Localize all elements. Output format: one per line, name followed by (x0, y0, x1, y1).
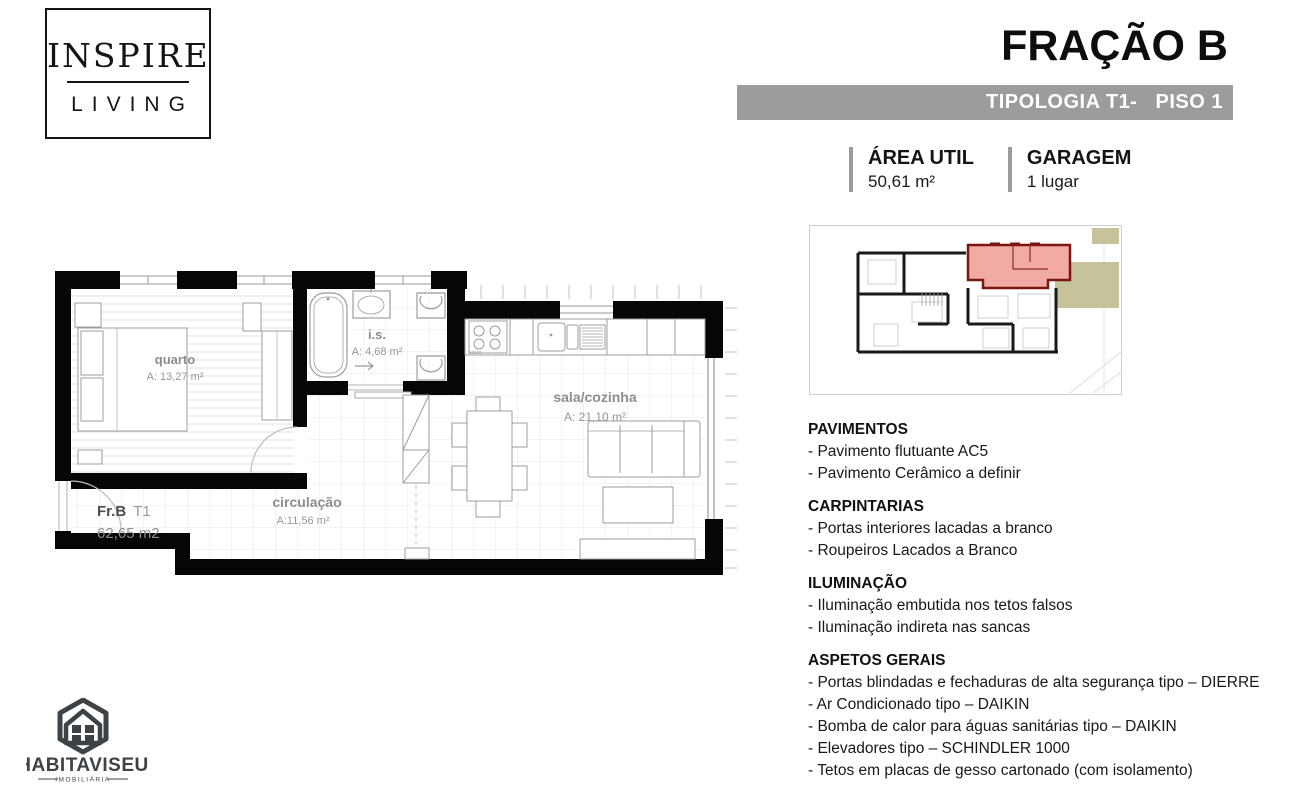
room-area-is: A: 4,68 m² (352, 346, 403, 358)
spec-list: PAVIMENTOS - Pavimento flutuante AC5 - P… (808, 419, 1282, 782)
spec-item: - Roupeiros Lacados a Branco (808, 540, 1282, 562)
kitchen-sink (538, 323, 565, 351)
balcony-glass-door (708, 358, 714, 519)
room-label-circulacao: circulação (272, 494, 341, 510)
brand-divider (67, 81, 189, 83)
nightstand (75, 303, 101, 327)
chair (452, 423, 467, 447)
spec-section-iluminacao: ILUMINAÇÃO - Iluminação embutida nos tet… (808, 573, 1282, 639)
room-area-circulacao: A:11,56 m² (277, 515, 330, 527)
bedroom-stool (78, 450, 102, 464)
spec-item: - Elevadores tipo – SCHINDLER 1000 (808, 738, 1282, 760)
spec-heading: ILUMINAÇÃO (808, 573, 1282, 595)
pillow (81, 378, 103, 421)
sofa (588, 421, 700, 477)
spec-item: - Iluminação embutida nos tetos falsos (808, 595, 1282, 617)
stove-scale-note: 10000 (469, 350, 482, 355)
spec-item: - Tetos em placas de gesso cartonado (co… (808, 760, 1282, 782)
spec-item: - Iluminação indireta nas sancas (808, 617, 1282, 639)
room-label-sala: sala/cozinha (553, 389, 636, 405)
kitchen-counter (465, 319, 705, 355)
spec-heading: CARPINTARIAS (808, 496, 1282, 518)
unit-id-label: Fr.BT1 (97, 503, 151, 520)
agency-tagline: IMOBILIÁRIA (55, 775, 111, 784)
house-icon (66, 711, 100, 743)
useful-area-value: 50,61 m² (868, 172, 974, 192)
page-title: FRAÇÃO B (1001, 22, 1228, 71)
agency-name: HABITAVISEU (26, 755, 149, 776)
typology-bar: TIPOLOGIA T1- PISO 1 (737, 85, 1233, 120)
floor-plan: quarto A: 13,27 m² i.s. A: 4,68 m² sala/… (55, 263, 739, 597)
spec-item: - Pavimento flutuante AC5 (808, 441, 1282, 463)
unit-info-row: ÁREA UTIL 50,61 m² GARAGEM 1 lugar (849, 147, 1131, 192)
stove (469, 321, 507, 353)
spec-item: - Ar Condicionado tipo – DAIKIN (808, 694, 1282, 716)
room-area-sala: A: 21,10 m² (564, 410, 626, 424)
brand-logo-box: INSPIRE LIVING (45, 8, 211, 139)
spec-section-pavimentos: PAVIMENTOS - Pavimento flutuante AC5 - P… (808, 419, 1282, 485)
room-label-is: i.s. (368, 327, 386, 342)
spec-item: - Portas blindadas e fechaduras de alta … (808, 672, 1282, 694)
coffee-table (603, 487, 673, 523)
spec-item: - Bomba de calor para águas sanitárias t… (808, 716, 1282, 738)
dining-table (467, 411, 512, 501)
brand-subname: LIVING (56, 93, 209, 117)
useful-area-label: ÁREA UTIL (868, 147, 974, 169)
unit-area-label: 62,65 m2 (97, 525, 160, 542)
garage-block: GARAGEM 1 lugar (1008, 147, 1131, 192)
brand-name: INSPIRE (47, 36, 209, 75)
chair (452, 466, 467, 490)
garage-value: 1 lugar (1027, 172, 1131, 192)
chair (476, 501, 500, 517)
dresser (243, 303, 261, 331)
parcel-boundary (810, 226, 1122, 395)
room-area-quarto: A: 13,27 m² (147, 371, 204, 383)
chair (512, 466, 527, 490)
spec-section-carpintarias: CARPINTARIAS - Portas interiores lacadas… (808, 496, 1282, 562)
pillow (81, 331, 103, 375)
garden-patch-small (1092, 228, 1119, 244)
spec-item: - Pavimento Cerâmico a definir (808, 463, 1282, 485)
tv-stand (580, 539, 695, 559)
spec-section-aspetos-gerais: ASPETOS GERAIS - Portas blindadas e fech… (808, 650, 1282, 782)
spec-heading: ASPETOS GERAIS (808, 650, 1282, 672)
building-key-plan (808, 224, 1123, 396)
room-label-quarto: quarto (155, 352, 196, 367)
spec-heading: PAVIMENTOS (808, 419, 1282, 441)
useful-area-block: ÁREA UTIL 50,61 m² (849, 147, 974, 192)
bathroom-sliding-door (348, 381, 411, 398)
chair (512, 423, 527, 447)
chair (476, 397, 500, 412)
garage-label: GARAGEM (1027, 147, 1131, 169)
spec-item: - Portas interiores lacadas a branco (808, 518, 1282, 540)
agency-logo: HABITAVISEU IMOBILIÁRIA (26, 698, 176, 793)
